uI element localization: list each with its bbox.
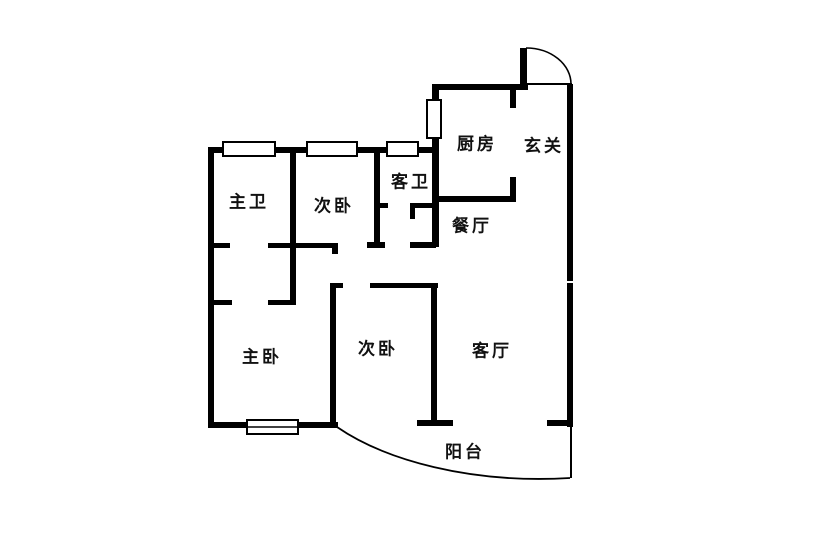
wall-bottom-right [547, 420, 573, 426]
wall-bedroom2-left [330, 283, 336, 427]
wall-kitchen-foyer-divider-upper [510, 85, 516, 108]
room-label-second-bedroom-top: 次卧 [314, 198, 354, 215]
exterior-walls [208, 48, 573, 428]
wall-top-c [357, 147, 387, 153]
wall-right-lower [567, 283, 573, 427]
wall-masterbath-bottom-a [208, 243, 230, 248]
window-bedroom-top [307, 142, 357, 156]
wall-bedroom2-left-cap [330, 283, 343, 288]
wall-guestbath-bottom-tick [410, 242, 436, 248]
entry-threshold-line [527, 83, 572, 85]
wall-masterbed-bottom-a [208, 422, 247, 428]
room-label-balcony: 阳台 [445, 444, 485, 461]
wall-masterbed-top-a [208, 300, 232, 305]
room-label-master-bathroom: 主卫 [229, 194, 269, 211]
wall-top-a [208, 147, 223, 153]
wall-bedroom-guestbath-divider [374, 147, 380, 248]
wall-kitchen-bottom [432, 196, 516, 202]
room-label-living-room: 客厅 [472, 343, 512, 360]
wall-kitchen-foyer-divider-lower [510, 177, 516, 202]
wall-masterbath-bedroom-divider [290, 147, 296, 305]
wall-bedroom2-top [370, 283, 438, 288]
window-guest-bath [387, 142, 418, 156]
room-label-guest-bathroom: 客卫 [391, 174, 431, 191]
wall-masterbed-top-b [268, 300, 296, 305]
room-label-second-bedroom: 次卧 [358, 341, 398, 358]
room-label-foyer: 玄关 [524, 138, 564, 155]
window-master-bath [223, 142, 275, 156]
floor-plan-drawing [0, 0, 833, 547]
wall-hall-down-tick [332, 243, 338, 254]
wall-guestbath-door-left [377, 203, 388, 208]
wall-bedroom2-right [431, 283, 437, 423]
floor-plan: 厨房 玄关 客卫 主卫 次卧 餐厅 主卧 次卧 客厅 阳台 [0, 0, 833, 547]
wall-kitchen-left-lower [432, 138, 439, 247]
room-label-dining-room: 餐厅 [452, 218, 492, 235]
window-kitchen [427, 100, 441, 138]
entry-door-arc [526, 48, 571, 84]
wall-guestbath-foot-tick [367, 242, 385, 248]
room-label-kitchen: 厨房 [457, 136, 497, 153]
wall-masterbath-bottom-b [268, 243, 338, 248]
wall-guestbath-door-right [412, 203, 432, 208]
room-label-master-bedroom: 主卧 [242, 349, 282, 366]
wall-right-upper [567, 84, 573, 281]
thin-lines [337, 48, 571, 479]
entry-door-jamb [520, 48, 527, 90]
wall-left-exterior [208, 147, 214, 428]
